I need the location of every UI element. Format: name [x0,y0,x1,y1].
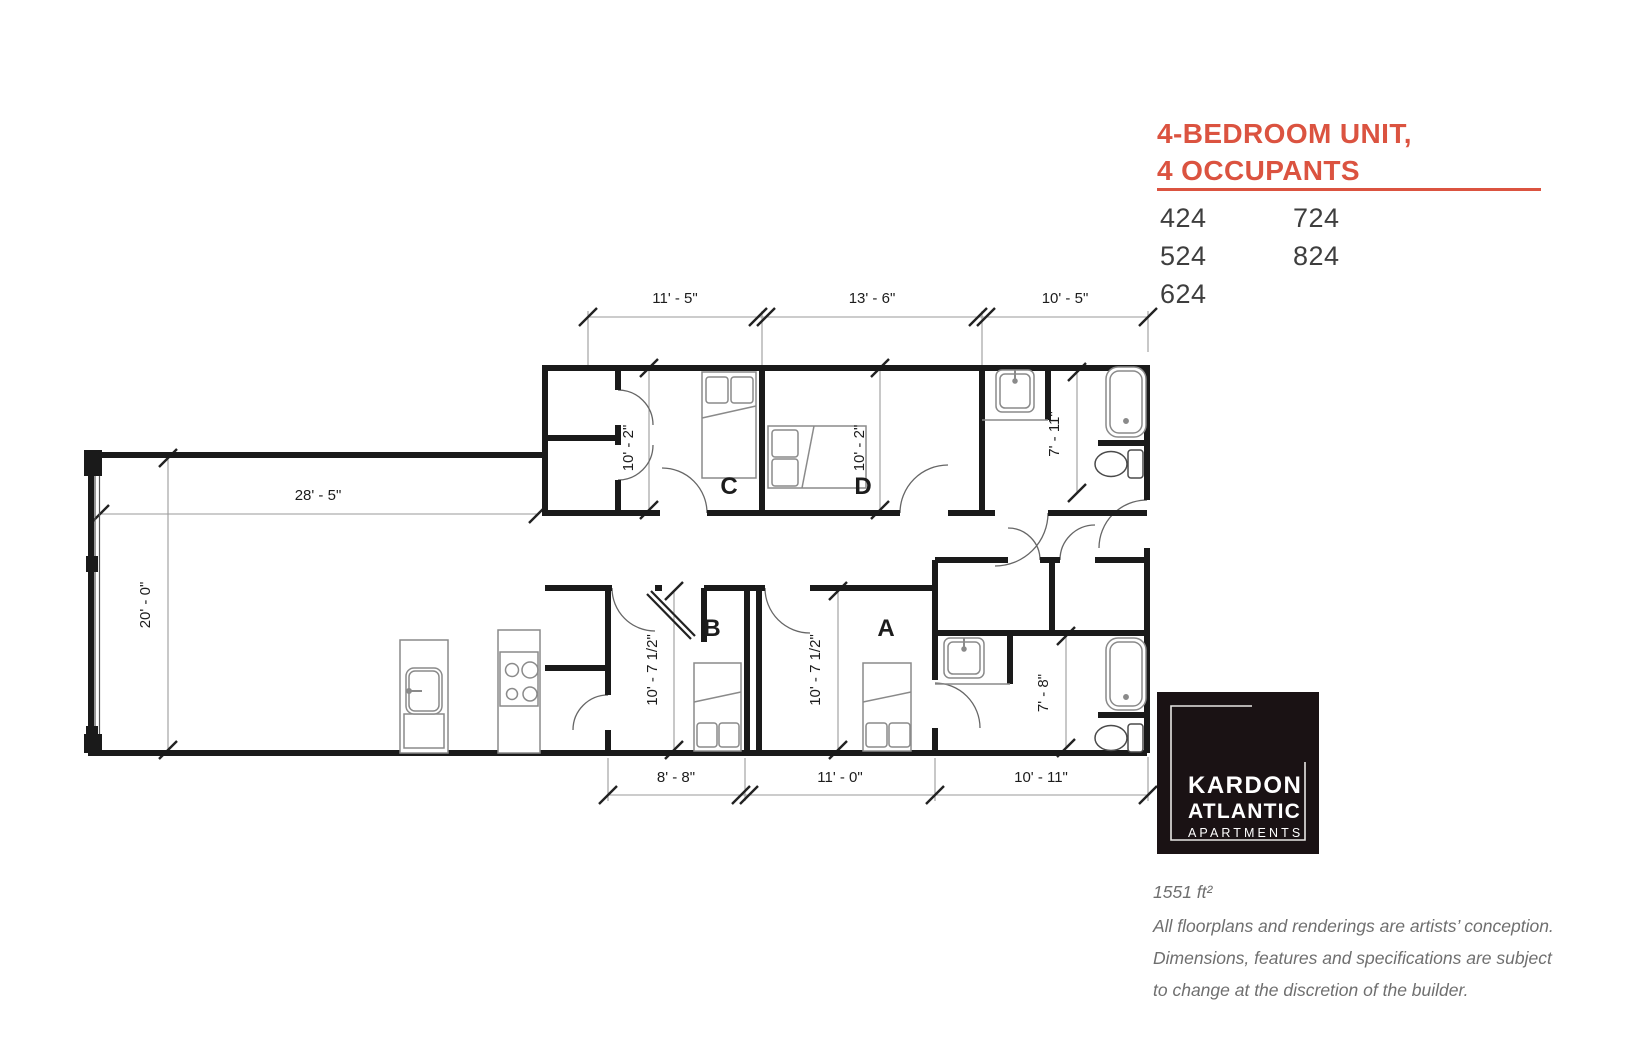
logo-line2: ATLANTIC [1188,800,1301,824]
logo-line1: KARDON [1188,772,1302,800]
logo-line3: APARTMENTS [1188,826,1303,840]
bathroom-sink-upper-icon [996,370,1034,412]
dim-label-top-1: 11' - 5" [652,290,697,307]
unit-number-524: 524 [1160,241,1207,272]
dim-label-bath-lower-depth: 7' - 8" [1035,674,1052,712]
room-label-d: D [854,473,871,500]
floorplan-page: 11' - 5" 13' - 6" 10' - 5" 28' - 5" 20' … [0,0,1637,1059]
bed-room-c [702,372,756,478]
dim-label-room-b-depth: 10' - 7 1/2" [644,634,661,706]
page-title-line1: 4-BEDROOM UNIT, [1157,115,1412,152]
dim-label-bath-upper-depth: 7' - 11" [1046,411,1063,456]
dim-label-living-height: 20' - 0" [137,582,154,629]
area-label: 1551 ft² [1153,882,1212,903]
toilet-upper-icon [1095,450,1143,478]
unit-number-424: 424 [1160,203,1207,234]
stove-icon [498,630,540,753]
kitchen-sink-icon [406,668,442,714]
disclaimer-line3: to change at the discretion of the build… [1153,980,1469,1001]
room-label-b: B [703,615,720,642]
room-label-a: A [877,615,894,642]
dim-label-bottom-3: 10' - 11" [1014,769,1068,786]
toilet-lower-icon [1095,724,1143,752]
dim-label-living-width: 28' - 5" [295,487,342,504]
room-label-c: C [720,473,737,500]
tub-shelf-lower [1098,712,1147,718]
window-glazing [95,472,100,738]
bathtub-upper-icon [1106,367,1146,437]
dim-label-bottom-2: 11' - 0" [817,769,862,786]
title-underline [1157,188,1541,191]
bed-room-a [863,663,911,751]
dim-label-bottom-1: 8' - 8" [657,769,695,786]
dim-label-top-2: 13' - 6" [849,290,896,307]
dim-label-room-c-depth: 10' - 2" [620,425,637,472]
walls [85,365,1147,753]
kardon-atlantic-logo: KARDON ATLANTIC APARTMENTS [1157,692,1319,854]
page-title: 4-BEDROOM UNIT, 4 OCCUPANTS [1157,115,1412,189]
dim-label-top-3: 10' - 5" [1042,290,1089,307]
bed-room-b [694,663,741,751]
unit-number-724: 724 [1293,203,1340,234]
angled-closet-door [647,591,695,639]
page-title-line2: 4 OCCUPANTS [1157,152,1412,189]
dimension-lines [100,311,1148,801]
disclaimer-line2: Dimensions, features and specifications … [1153,948,1552,969]
unit-number-624: 624 [1160,279,1207,310]
disclaimer-line1: All floorplans and renderings are artist… [1153,916,1554,937]
tub-shelf-upper [1098,440,1147,446]
dim-label-room-a-depth: 10' - 7 1/2" [807,634,824,706]
bathtub-lower-icon [1106,638,1146,710]
bathroom-sink-lower-icon [944,638,984,678]
dim-label-room-d-depth: 10' - 2" [851,425,868,472]
unit-number-824: 824 [1293,241,1340,272]
